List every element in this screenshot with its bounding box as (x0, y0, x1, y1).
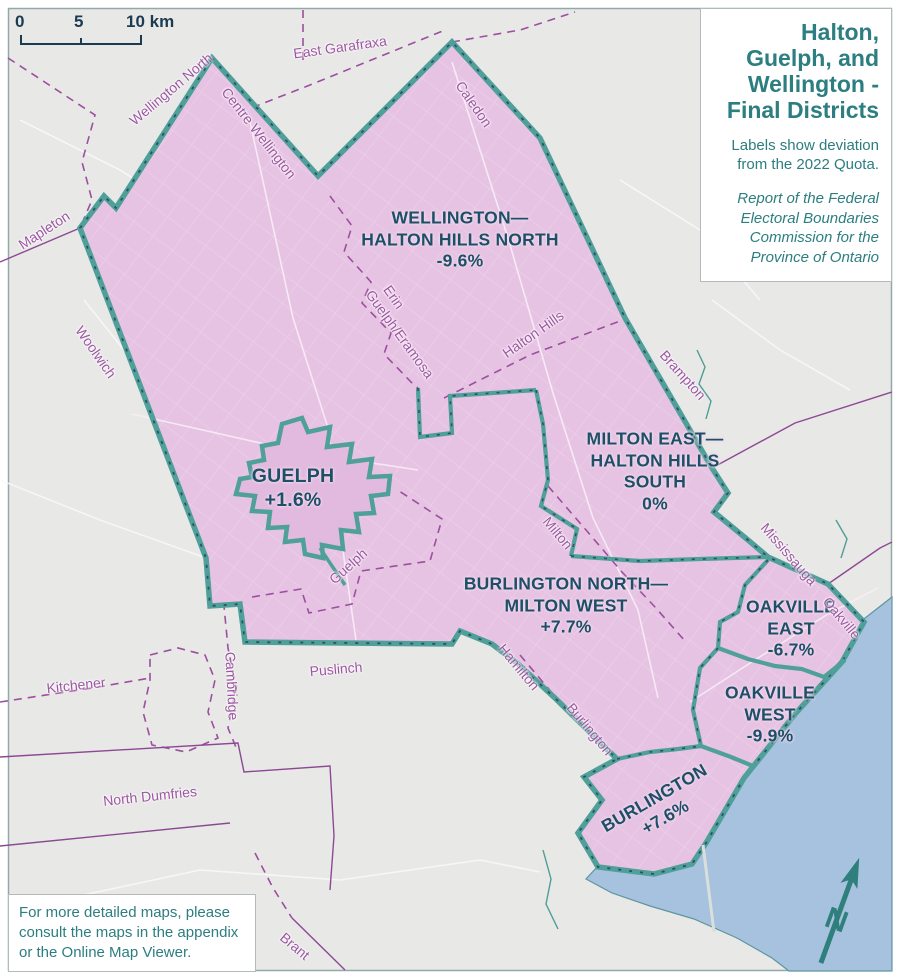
district-name-line: MILTON EAST— (587, 429, 724, 451)
district-name-line: GUELPH (252, 464, 334, 488)
district-deviation: 0% (587, 494, 724, 516)
scale-label-5: 5 (74, 12, 83, 32)
district-label-wellington-halton-hills-north: WELLINGTON— HALTON HILLS NORTH -9.6% (361, 207, 558, 272)
district-name-line: OAKVILLE (725, 682, 815, 704)
district-name-line: EAST (746, 618, 836, 640)
district-label-burlington-north-milton-west: BURLINGTON NORTH— MILTON WEST +7.7% (464, 573, 668, 638)
title-box: Halton, Guelph, and Wellington - Final D… (700, 8, 892, 282)
district-name-line: WELLINGTON— (361, 207, 558, 229)
scale-label-0: 0 (15, 12, 24, 32)
scale-label-10km: 10 km (126, 12, 174, 32)
district-label-guelph: GUELPH +1.6% (252, 464, 334, 512)
map-subtitle: Labels show deviation from the 2022 Quot… (711, 136, 879, 174)
map-citation: Report of the Federal Electoral Boundari… (711, 189, 879, 267)
district-name-line: HALTON HILLS NORTH (361, 229, 558, 251)
note-box: For more detailed maps, please consult t… (8, 894, 256, 972)
map-title: Halton, Guelph, and Wellington - Final D… (711, 19, 879, 123)
scale-bar: 0 5 10 km (14, 12, 234, 58)
district-deviation: -9.9% (725, 726, 815, 748)
district-name-line: WEST (725, 704, 815, 726)
district-name-line: MILTON WEST (464, 595, 668, 617)
district-name-line: BURLINGTON NORTH— (464, 573, 668, 595)
district-deviation: +7.7% (464, 617, 668, 639)
note-text: For more detailed maps, please consult t… (19, 904, 238, 961)
scale-tick (140, 35, 142, 45)
map-page: N WELLINGTON— HALTON HILLS NORTH -9.6% G… (0, 0, 900, 979)
district-deviation: -6.7% (746, 640, 836, 662)
district-label-milton-east-halton-hills-south: MILTON EAST— HALTON HILLS SOUTH 0% (587, 429, 724, 516)
district-name-line: SOUTH (587, 472, 724, 494)
scale-tick (80, 38, 82, 45)
district-label-oakville-west: OAKVILLE WEST -9.9% (725, 682, 815, 747)
district-deviation: +1.6% (252, 488, 334, 512)
district-deviation: -9.6% (361, 251, 558, 273)
scale-tick (20, 35, 22, 45)
district-name-line: HALTON HILLS (587, 450, 724, 472)
